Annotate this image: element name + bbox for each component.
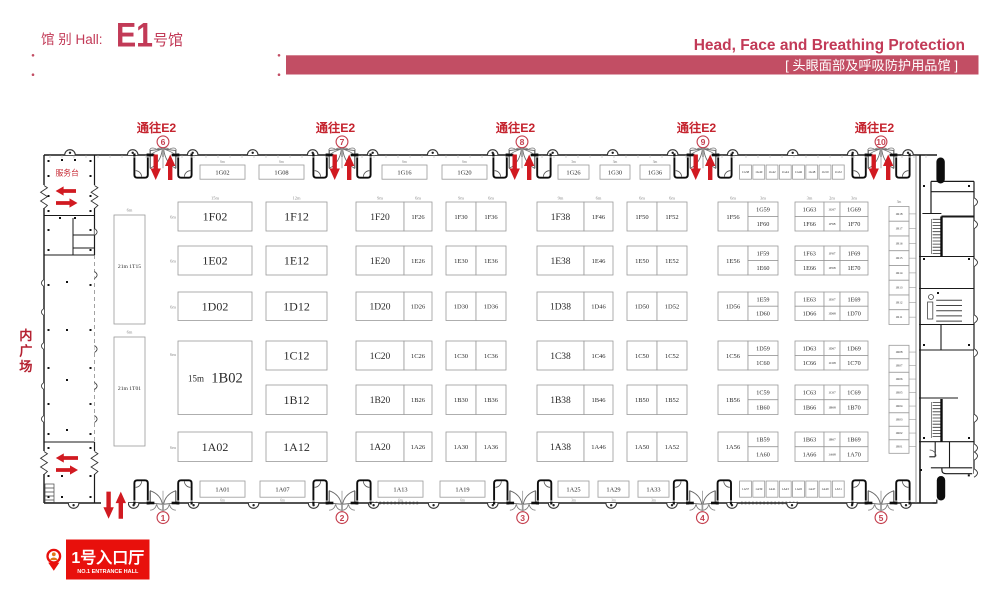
- svg-text:1R08: 1R08: [896, 350, 903, 354]
- svg-text:6m: 6m: [462, 160, 467, 164]
- svg-text:1G69: 1G69: [847, 206, 861, 213]
- svg-text:1D66: 1D66: [803, 311, 817, 318]
- svg-text:1R17: 1R17: [896, 227, 903, 231]
- svg-text:1C56: 1C56: [726, 353, 741, 360]
- svg-text:1F70: 1F70: [848, 221, 861, 228]
- svg-text:1G44: 1G44: [782, 170, 789, 174]
- svg-text:1R02: 1R02: [896, 431, 903, 435]
- svg-text:1B30: 1B30: [454, 397, 468, 404]
- svg-text:3m: 3m: [613, 160, 618, 164]
- svg-text:1A38: 1A38: [550, 443, 571, 453]
- svg-text:1G40: 1G40: [755, 170, 762, 174]
- svg-text:1B68: 1B68: [828, 405, 836, 409]
- svg-text:1F38: 1F38: [551, 213, 571, 223]
- svg-text:号馆: 号馆: [153, 32, 183, 49]
- svg-text:1A51: 1A51: [835, 487, 842, 491]
- svg-text:内: 内: [19, 327, 32, 343]
- svg-text:通往E2: 通往E2: [677, 120, 717, 135]
- svg-text:1A36: 1A36: [484, 444, 499, 451]
- svg-text:8: 8: [520, 137, 525, 147]
- svg-text:1R11: 1R11: [896, 315, 903, 319]
- svg-text:3m: 3m: [651, 499, 656, 503]
- svg-text:1D12: 1D12: [283, 299, 310, 313]
- svg-text:1D26: 1D26: [411, 304, 426, 311]
- svg-text:1B66: 1B66: [803, 404, 816, 411]
- svg-text:1B12: 1B12: [283, 393, 309, 407]
- svg-text:6m: 6m: [488, 196, 494, 201]
- svg-text:1A13: 1A13: [393, 486, 407, 493]
- svg-text:1C70: 1C70: [847, 360, 860, 367]
- svg-text:6m: 6m: [415, 196, 421, 201]
- svg-text:1R13: 1R13: [896, 286, 903, 290]
- svg-text:1G48: 1G48: [808, 170, 815, 174]
- svg-text:1C60: 1C60: [756, 360, 769, 367]
- svg-text:1G38: 1G38: [742, 170, 749, 174]
- svg-text:1D56: 1D56: [726, 304, 741, 311]
- svg-text:1E67: 1E67: [828, 297, 835, 301]
- svg-text:3m: 3m: [611, 499, 616, 503]
- svg-text:1C66: 1C66: [803, 360, 816, 367]
- svg-text:1R12: 1R12: [896, 300, 903, 304]
- svg-text:1R18: 1R18: [896, 212, 903, 216]
- svg-text:1E50: 1E50: [635, 258, 649, 265]
- svg-text:1G59: 1G59: [756, 206, 770, 213]
- svg-text:1A12: 1A12: [283, 440, 310, 454]
- svg-text:15m: 15m: [188, 374, 204, 384]
- svg-text:1B70: 1B70: [847, 404, 860, 411]
- svg-text:1R01: 1R01: [896, 445, 903, 449]
- svg-text:1A68: 1A68: [828, 452, 836, 456]
- svg-text:通往E2: 通往E2: [316, 120, 356, 135]
- svg-text:1G52: 1G52: [835, 170, 842, 174]
- svg-text:6m: 6m: [398, 499, 403, 503]
- svg-text:1F69: 1F69: [848, 250, 861, 257]
- svg-text:1D68: 1D68: [828, 312, 836, 316]
- svg-text:馆 别 Hall:: 馆 别 Hall:: [41, 32, 103, 47]
- svg-text:1C69: 1C69: [847, 390, 860, 397]
- svg-text:1A49: 1A49: [821, 487, 828, 491]
- svg-text:1A26: 1A26: [411, 444, 426, 451]
- svg-text:7: 7: [340, 137, 345, 147]
- svg-text:1F50: 1F50: [635, 214, 648, 221]
- svg-text:3m: 3m: [653, 160, 658, 164]
- svg-text:1A43: 1A43: [782, 487, 789, 491]
- svg-text:1B26: 1B26: [411, 397, 426, 404]
- svg-text:6m: 6m: [170, 352, 176, 357]
- svg-text:1R06: 1R06: [896, 377, 903, 381]
- svg-text:1G50: 1G50: [821, 170, 828, 174]
- svg-text:2: 2: [340, 513, 345, 523]
- svg-text:1G08: 1G08: [274, 169, 288, 176]
- svg-text:1E38: 1E38: [550, 257, 570, 267]
- svg-text:3m: 3m: [571, 499, 576, 503]
- svg-text:1B69: 1B69: [847, 437, 860, 444]
- svg-text:1A66: 1A66: [803, 451, 817, 458]
- svg-text:1F46: 1F46: [592, 214, 606, 221]
- svg-text:1C26: 1C26: [411, 353, 426, 360]
- svg-text:6m: 6m: [596, 196, 602, 201]
- svg-text:1R14: 1R14: [896, 271, 903, 275]
- svg-text:1E36: 1E36: [484, 258, 498, 265]
- svg-text:1E26: 1E26: [411, 258, 425, 265]
- svg-text:6m: 6m: [639, 196, 645, 201]
- svg-text:1R04: 1R04: [896, 404, 903, 408]
- svg-text:1B67: 1B67: [828, 438, 836, 442]
- svg-text:1G16: 1G16: [397, 169, 411, 176]
- svg-text:12m: 12m: [292, 196, 301, 201]
- svg-text:通往E2: 通往E2: [855, 120, 895, 135]
- svg-text:1C59: 1C59: [756, 390, 769, 397]
- svg-text:NO.1 ENTRANCE HALL: NO.1 ENTRANCE HALL: [77, 569, 139, 575]
- svg-text:10: 10: [876, 137, 886, 147]
- svg-text:1F12: 1F12: [284, 210, 309, 224]
- svg-text:6m: 6m: [127, 208, 133, 213]
- svg-text:1E12: 1E12: [284, 254, 309, 268]
- svg-text:3m: 3m: [571, 160, 576, 164]
- svg-text:1F67: 1F67: [829, 251, 836, 255]
- svg-text:1E66: 1E66: [803, 265, 816, 272]
- svg-text:1E68: 1E68: [828, 266, 835, 270]
- svg-text:1A07: 1A07: [275, 486, 290, 493]
- svg-text:1E56: 1E56: [726, 258, 740, 265]
- svg-text:1E52: 1E52: [665, 258, 679, 265]
- svg-text:1R16: 1R16: [896, 241, 903, 245]
- svg-text:1D59: 1D59: [756, 345, 770, 352]
- svg-text:1A60: 1A60: [756, 451, 770, 458]
- svg-text:1F68: 1F68: [829, 222, 836, 226]
- svg-text:1A30: 1A30: [454, 444, 468, 451]
- svg-text:1F66: 1F66: [803, 221, 816, 228]
- svg-text:9m: 9m: [458, 196, 464, 201]
- svg-text:1A50: 1A50: [635, 444, 649, 451]
- svg-text:1R07: 1R07: [896, 364, 903, 368]
- svg-text:E1: E1: [116, 17, 153, 55]
- svg-text:1R15: 1R15: [896, 256, 903, 260]
- svg-text:1G36: 1G36: [648, 169, 662, 176]
- svg-text:1G20: 1G20: [457, 169, 471, 176]
- svg-text:3m: 3m: [760, 196, 766, 201]
- svg-text:1A25: 1A25: [566, 486, 580, 493]
- svg-text:1A02: 1A02: [202, 440, 229, 454]
- svg-text:15m: 15m: [211, 196, 220, 201]
- svg-text:1A52: 1A52: [665, 444, 679, 451]
- svg-text:6m: 6m: [127, 330, 133, 335]
- svg-text:6m: 6m: [220, 499, 225, 503]
- svg-text:1B59: 1B59: [756, 437, 769, 444]
- svg-text:1E02: 1E02: [202, 254, 227, 268]
- svg-text:广: 广: [19, 343, 32, 359]
- svg-text:通往E2: 通往E2: [496, 120, 536, 135]
- svg-text:1B38: 1B38: [550, 396, 571, 406]
- svg-text:1C50: 1C50: [635, 353, 649, 360]
- svg-text:1E63: 1E63: [803, 296, 816, 303]
- svg-text:4: 4: [700, 513, 705, 523]
- svg-text:1E59: 1E59: [756, 296, 769, 303]
- svg-text:1G42: 1G42: [768, 170, 775, 174]
- svg-text:1: 1: [161, 513, 166, 523]
- svg-text:通往E2: 通往E2: [137, 120, 177, 135]
- svg-text:1C68: 1C68: [828, 361, 836, 365]
- svg-text:1A20: 1A20: [369, 443, 390, 453]
- svg-text:1C46: 1C46: [591, 353, 606, 360]
- svg-text:Head, Face and Breathing Prote: Head, Face and Breathing Protection: [694, 37, 965, 54]
- svg-text:1B36: 1B36: [484, 397, 499, 404]
- svg-text:1F59: 1F59: [757, 250, 770, 257]
- svg-text:1A41: 1A41: [768, 487, 775, 491]
- svg-text:5: 5: [879, 513, 884, 523]
- svg-text:1F30: 1F30: [454, 214, 467, 221]
- svg-text:1G46: 1G46: [795, 170, 802, 174]
- svg-text:6m: 6m: [460, 499, 465, 503]
- svg-text:1E70: 1E70: [847, 265, 860, 272]
- svg-text:1A56: 1A56: [726, 444, 741, 451]
- svg-text:3: 3: [520, 513, 525, 523]
- svg-text:6m: 6m: [402, 160, 407, 164]
- svg-text:1C36: 1C36: [484, 353, 499, 360]
- svg-text:1A70: 1A70: [847, 451, 861, 458]
- svg-text:1C38: 1C38: [550, 352, 571, 362]
- svg-text:1B02: 1B02: [211, 371, 242, 387]
- svg-text:9m: 9m: [377, 196, 383, 201]
- svg-text:1D46: 1D46: [591, 304, 606, 311]
- svg-text:3m: 3m: [897, 200, 902, 204]
- svg-text:1B50: 1B50: [635, 397, 649, 404]
- svg-text:1E20: 1E20: [370, 257, 390, 267]
- svg-text:1G02: 1G02: [215, 169, 229, 176]
- svg-text:6m: 6m: [170, 445, 176, 450]
- svg-text:1B56: 1B56: [726, 397, 741, 404]
- svg-text:1D02: 1D02: [202, 299, 229, 313]
- svg-text:1R03: 1R03: [896, 418, 903, 422]
- svg-text:1D63: 1D63: [803, 345, 817, 352]
- svg-text:1号入口厅: 1号入口厅: [71, 549, 144, 567]
- svg-text:6m: 6m: [170, 259, 176, 264]
- svg-text:1C52: 1C52: [665, 353, 679, 360]
- svg-text:1F56: 1F56: [726, 214, 740, 221]
- svg-text:1A29: 1A29: [606, 486, 620, 493]
- svg-text:1B63: 1B63: [803, 437, 816, 444]
- svg-text:1F63: 1F63: [803, 250, 816, 257]
- svg-text:1D30: 1D30: [454, 304, 468, 311]
- svg-text:1C12: 1C12: [283, 349, 309, 363]
- svg-text:6m: 6m: [220, 160, 225, 164]
- svg-text:1D60: 1D60: [756, 311, 770, 318]
- svg-text:6m: 6m: [170, 304, 176, 309]
- svg-text:9m: 9m: [558, 196, 564, 201]
- svg-text:1A33: 1A33: [646, 486, 660, 493]
- svg-text:1B20: 1B20: [370, 396, 391, 406]
- svg-text:1F52: 1F52: [665, 214, 678, 221]
- svg-text:3m: 3m: [807, 196, 813, 201]
- svg-text:1G67: 1G67: [828, 207, 836, 211]
- svg-text:1A46: 1A46: [591, 444, 606, 451]
- svg-text:1D52: 1D52: [665, 304, 679, 311]
- svg-text:1D69: 1D69: [847, 345, 861, 352]
- svg-text:6m: 6m: [279, 160, 284, 164]
- svg-text:1C30: 1C30: [454, 353, 468, 360]
- svg-text:1F26: 1F26: [411, 214, 425, 221]
- svg-text:1E69: 1E69: [847, 296, 860, 303]
- svg-text:6: 6: [161, 137, 166, 147]
- svg-text:1F02: 1F02: [203, 210, 228, 224]
- svg-text:1F60: 1F60: [757, 221, 770, 228]
- svg-text:21m 1T15: 21m 1T15: [118, 264, 141, 270]
- svg-text:1A45: 1A45: [795, 487, 802, 491]
- svg-text:1D67: 1D67: [828, 346, 836, 350]
- svg-text:1R05: 1R05: [896, 391, 903, 395]
- svg-text:1B46: 1B46: [591, 397, 606, 404]
- svg-text:1B60: 1B60: [756, 404, 769, 411]
- svg-text:场: 场: [19, 359, 32, 374]
- svg-text:1A01: 1A01: [215, 486, 229, 493]
- svg-text:1G26: 1G26: [566, 169, 580, 176]
- svg-text:1E60: 1E60: [756, 265, 769, 272]
- svg-text:1C20: 1C20: [370, 352, 391, 362]
- svg-text:1D20: 1D20: [369, 303, 390, 313]
- svg-text:1B52: 1B52: [665, 397, 679, 404]
- svg-text:[ 头眼面部及呼吸防护用品馆 ]: [ 头眼面部及呼吸防护用品馆 ]: [785, 58, 958, 73]
- svg-text:6m: 6m: [280, 499, 285, 503]
- svg-text:1E30: 1E30: [454, 258, 468, 265]
- svg-text:6m: 6m: [730, 196, 736, 201]
- svg-text:9: 9: [701, 137, 706, 147]
- svg-text:1G30: 1G30: [608, 169, 622, 176]
- svg-text:1E46: 1E46: [592, 258, 606, 265]
- svg-text:1A37: 1A37: [742, 487, 749, 491]
- svg-text:1G63: 1G63: [803, 206, 817, 213]
- svg-text:1D38: 1D38: [550, 303, 571, 313]
- svg-text:1C63: 1C63: [803, 390, 816, 397]
- svg-text:1D70: 1D70: [847, 311, 861, 318]
- svg-text:2m: 2m: [829, 196, 835, 201]
- svg-text:6m: 6m: [170, 215, 176, 220]
- svg-text:21m 1T01: 21m 1T01: [118, 386, 141, 392]
- svg-text:1A39: 1A39: [755, 487, 762, 491]
- svg-text:1C67: 1C67: [828, 391, 836, 395]
- svg-text:1A47: 1A47: [808, 487, 815, 491]
- svg-text:1F20: 1F20: [370, 213, 390, 223]
- svg-text:服务台: 服务台: [56, 168, 80, 178]
- svg-text:6m: 6m: [669, 196, 675, 201]
- svg-text:1F36: 1F36: [484, 214, 498, 221]
- svg-text:1A19: 1A19: [455, 486, 469, 493]
- svg-text:1D50: 1D50: [635, 304, 649, 311]
- svg-text:3m: 3m: [851, 196, 857, 201]
- svg-text:1D36: 1D36: [484, 304, 499, 311]
